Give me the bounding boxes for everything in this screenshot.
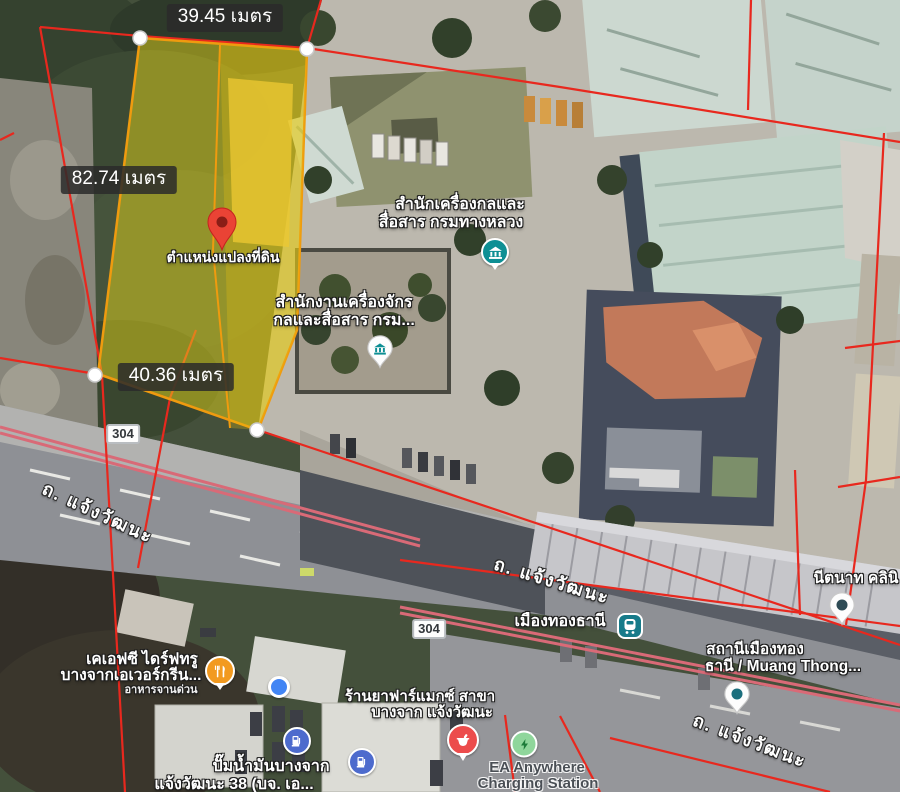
transit-station-icon[interactable] bbox=[616, 612, 644, 645]
icon-tail bbox=[215, 683, 225, 690]
white-teardrop-pin bbox=[724, 681, 750, 715]
poi-gas-line1[interactable]: ปั๊มน้ำมันบางจาก bbox=[212, 759, 329, 776]
satellite-map[interactable]: ตำแหน่งแปลงที่ดิน 39.45 เมตร 82.74 เมตร … bbox=[0, 0, 900, 792]
measurement-left: 82.74 เมตร bbox=[61, 166, 177, 194]
government-pin-icon[interactable] bbox=[367, 335, 393, 374]
red-map-pin-icon bbox=[205, 207, 239, 251]
icon-tail bbox=[458, 753, 468, 761]
poi-kfc-line2[interactable]: บางจากเอเวอร์กรีน... bbox=[61, 668, 202, 684]
poi-station-line2[interactable]: ธานี / Muang Thong... bbox=[705, 659, 861, 675]
white-teardrop-pin bbox=[367, 335, 393, 369]
lightning-bolt-glyph bbox=[517, 737, 531, 751]
measurement-top: 39.45 เมตร bbox=[167, 4, 283, 32]
poi-gov-office1-line1[interactable]: สำนักเครื่องกลและ bbox=[395, 197, 525, 214]
poi-gov-office1-line2[interactable]: สื่อสาร กรมทางหลวง bbox=[379, 215, 523, 232]
poi-ev-line1[interactable]: EA Anywhere bbox=[489, 760, 585, 776]
route-badge-304-west: 304 bbox=[106, 424, 140, 444]
pharmacy-icon[interactable] bbox=[447, 724, 479, 756]
measurement-bottom: 40.36 เมตร bbox=[118, 363, 234, 391]
mortar-pestle-glyph bbox=[455, 732, 471, 748]
poi-kfc-line1[interactable]: เคเอฟซี ไดร์ฟทรู bbox=[86, 652, 198, 668]
poi-gov-office2-line2[interactable]: กลและสื่อสาร กรม... bbox=[273, 313, 415, 330]
restaurant-icon[interactable] bbox=[205, 656, 235, 686]
gas-station-icon-2[interactable] bbox=[348, 748, 376, 776]
poi-clinic-name[interactable]: นีตนาท คลินิ bbox=[814, 571, 899, 587]
white-teardrop-pin bbox=[829, 592, 855, 626]
blue-location-dot bbox=[268, 676, 290, 698]
gas-station-icon[interactable] bbox=[283, 727, 311, 755]
clinic-place-pin-icon[interactable] bbox=[829, 592, 855, 631]
poi-transit-name[interactable]: เมืองทองธานี bbox=[514, 614, 605, 631]
poi-kfc-subtitle[interactable]: อาหารจานด่วน bbox=[124, 685, 197, 697]
station-place-pin-icon[interactable] bbox=[724, 681, 750, 720]
poi-station-line1[interactable]: สถานีเมืองทอง bbox=[706, 642, 804, 658]
ev-charging-icon[interactable] bbox=[511, 731, 538, 758]
train-badge bbox=[616, 612, 644, 640]
poi-gov-office2-line1[interactable]: สำนักงานเครื่องจักร bbox=[276, 295, 413, 312]
government-building-icon[interactable] bbox=[481, 238, 509, 266]
poi-ev-line2[interactable]: Charging Station bbox=[478, 776, 599, 792]
fork-knife-glyph bbox=[213, 664, 228, 679]
gas-pump-glyph bbox=[355, 755, 369, 769]
icon-tail bbox=[490, 263, 500, 270]
poi-gas-line2[interactable]: แจ้งวัฒนะ 38 (บจ. เอ... bbox=[154, 777, 313, 792]
plot-pin-label: ตำแหน่งแปลงที่ดิน bbox=[167, 250, 280, 265]
bank-glyph bbox=[488, 245, 503, 260]
poi-pharmacy-line2[interactable]: บางจาก แจ้งวัฒนะ bbox=[371, 705, 493, 721]
poi-pharmacy-line1[interactable]: ร้านยาฟาร์แมกซ์ สาขา bbox=[345, 689, 495, 705]
route-badge-304-east: 304 bbox=[412, 619, 446, 639]
gas-pump-glyph bbox=[290, 734, 304, 748]
